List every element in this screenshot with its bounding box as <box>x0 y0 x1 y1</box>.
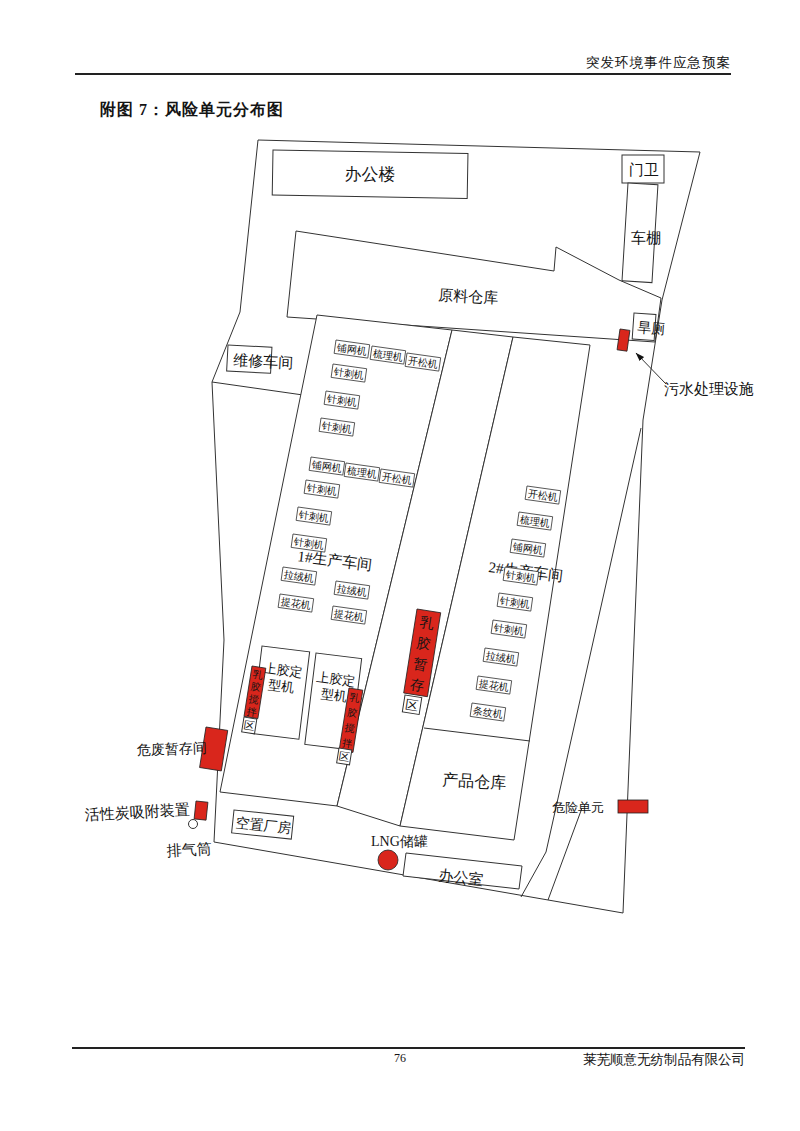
maintenance-workshop-label: 维修车间 <box>233 352 294 371</box>
document-page: 突发环境事件应急预案 附图 7：风险单元分布图 办公楼 门卫 <box>0 0 800 1131</box>
latex-storage-suffix-box: 区 <box>402 695 421 714</box>
lng-tank-label: LNG储罐 <box>371 834 428 849</box>
legend-hazard-unit-label: 危险单元 <box>552 800 604 815</box>
gate-house-label: 门卫 <box>629 162 659 178</box>
latex-mixing-left-suffix-box: 区 <box>242 717 257 734</box>
latex-mixing-right-suffix-box: 区 <box>337 748 352 765</box>
sewage-treatment-label: 污水处理设施 <box>664 381 754 397</box>
office-building-label: 办公楼 <box>345 165 396 184</box>
latex-mixing-left-suffix: 区 <box>243 719 256 733</box>
legend-hazard-unit-swatch <box>618 800 648 813</box>
raw-material-warehouse-label: 原料仓库 <box>438 287 499 306</box>
product-warehouse-label: 产品仓库 <box>442 771 507 791</box>
exhaust-stack-label: 排气筒 <box>165 841 212 859</box>
latex-storage-suffix: 区 <box>404 697 419 714</box>
footer-rule <box>72 1047 745 1049</box>
exhaust-stack <box>189 820 198 829</box>
footer-company: 莱芜顺意无纺制品有限公司 <box>583 1051 745 1069</box>
site-plan-diagram: 办公楼 门卫 车棚 原料仓库 旱厕 污水处理设施 维修车间 <box>0 0 800 1131</box>
glue-machine-2-line2: 型机 <box>320 686 348 704</box>
activated-carbon-zone <box>194 801 208 820</box>
lng-tank <box>378 850 398 870</box>
carport-label: 车棚 <box>631 230 661 246</box>
hazardous-waste-label: 危废暂存间 <box>137 741 207 758</box>
latex-mixing-right-suffix: 区 <box>338 750 351 764</box>
dry-toilet-label: 旱厕 <box>637 320 666 337</box>
activated-carbon-label: 活性炭吸附装置 <box>84 802 190 823</box>
glue-machine-1-line2: 型机 <box>267 677 295 695</box>
